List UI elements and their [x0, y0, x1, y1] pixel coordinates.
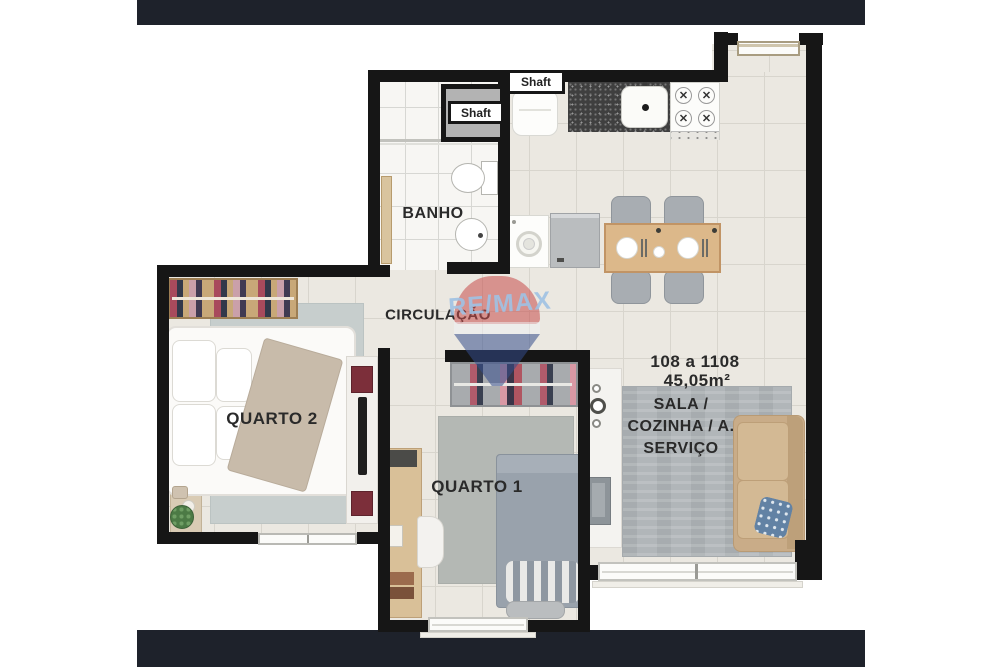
dining-table — [604, 223, 721, 273]
desk-books — [388, 572, 414, 585]
stove: ✕ ✕ ✕ ✕ — [670, 82, 720, 140]
wall-segment — [157, 532, 258, 544]
desk-monitor — [386, 450, 417, 467]
desk-notepad — [388, 525, 403, 547]
wall-segment — [378, 348, 390, 632]
window-mullion — [307, 535, 309, 543]
bed-fold — [497, 455, 583, 473]
shaft-label-text: Shaft — [521, 75, 551, 89]
plant — [170, 505, 194, 529]
cutlery — [702, 239, 704, 257]
window-sill — [420, 632, 536, 638]
room-label-quarto2: QUARTO 2 — [226, 409, 318, 429]
closet-quarto1 — [450, 362, 578, 407]
window-frame-line — [739, 44, 798, 47]
wall-segment — [445, 350, 590, 362]
decor-ring — [592, 419, 601, 428]
wall-segment — [527, 620, 590, 632]
room-label-sala-cozinha-servico: SALA / COZINHA / A. SERVIÇO — [601, 394, 761, 460]
wall-segment — [157, 265, 390, 277]
unit-area-label: 45,05m² — [664, 371, 731, 391]
room-label-banho: BANHO — [402, 205, 463, 223]
burner-icon: ✕ — [675, 87, 692, 104]
closet-rod — [454, 383, 572, 386]
pillow — [216, 348, 252, 402]
shaft-label-text: Shaft — [461, 106, 491, 120]
dining-chair — [611, 270, 651, 304]
table-knob — [656, 228, 661, 233]
tv-screen — [592, 483, 605, 517]
plate — [616, 237, 638, 259]
tv-quarto2 — [358, 397, 367, 475]
shaft-label-kitchen: Shaft — [507, 70, 565, 94]
wall-segment — [368, 70, 380, 274]
kitchen-sink — [621, 86, 668, 128]
cutlery — [645, 239, 647, 257]
top-letterbox-bar — [137, 0, 865, 25]
window-quarto2 — [258, 533, 357, 545]
rack-rod — [172, 297, 294, 300]
stove-controls — [671, 131, 719, 140]
table-knob — [712, 228, 717, 233]
striped-pillow — [505, 560, 580, 604]
desk-chair — [417, 516, 444, 568]
pillow — [172, 404, 216, 466]
wall-segment — [714, 33, 738, 45]
tv-sala — [588, 477, 611, 525]
plate — [677, 237, 699, 259]
bowl — [653, 246, 665, 258]
window-mullion — [695, 564, 698, 579]
cutlery — [641, 239, 643, 257]
window-frame-line — [432, 624, 524, 626]
window-sill — [592, 581, 803, 588]
floor-plan-image: ✕ ✕ ✕ ✕ — [0, 0, 1000, 667]
decor-red-item — [351, 491, 373, 516]
window-sala-sliding-door — [598, 562, 797, 581]
wall-segment — [378, 620, 428, 632]
tank-handle — [557, 258, 564, 262]
washer-door-inner — [523, 238, 535, 250]
desk-books — [388, 587, 414, 599]
cutlery — [706, 239, 708, 257]
sink-faucet-dot — [478, 233, 483, 238]
burner-icon: ✕ — [698, 87, 715, 104]
washer-knob — [512, 220, 516, 224]
toilet-bowl — [451, 163, 485, 193]
window-quarto1 — [428, 617, 528, 632]
wall-segment — [795, 540, 822, 580]
wall-segment — [578, 350, 590, 632]
shaft-label-bathroom: Shaft — [448, 101, 504, 124]
pillow — [172, 340, 216, 402]
room-label-circulacao: CIRCULAÇÃO — [385, 307, 491, 324]
sala-label-line3: SERVIÇO — [601, 438, 761, 460]
water-heater — [512, 90, 558, 136]
window-kitchen-top — [737, 41, 800, 56]
wall-segment — [578, 565, 600, 580]
sala-label-line1: SALA / — [601, 394, 761, 416]
decor-ring — [592, 384, 601, 393]
decor-red-item — [351, 366, 373, 393]
clothes-rack-quarto2 — [168, 278, 298, 319]
room-label-quarto1: QUARTO 1 — [431, 477, 523, 497]
tank-top-edge — [551, 214, 599, 218]
wall-segment — [447, 262, 510, 274]
laundry-tank — [550, 213, 600, 268]
washing-machine — [507, 215, 549, 268]
wall-segment — [806, 33, 822, 580]
sink-drain — [642, 104, 649, 111]
bathroom-door-leaf — [381, 176, 392, 264]
heater-line — [519, 99, 551, 111]
basket — [172, 486, 188, 499]
shower-glass-divider — [380, 143, 498, 145]
burner-icon: ✕ — [698, 110, 715, 127]
sofa-back — [787, 416, 803, 549]
unit-range-label: 108 a 1108 — [650, 352, 739, 372]
dining-chair — [664, 270, 704, 304]
sala-label-line2: COZINHA / A. — [601, 416, 761, 438]
burner-icon: ✕ — [675, 110, 692, 127]
wall-segment — [157, 265, 169, 544]
